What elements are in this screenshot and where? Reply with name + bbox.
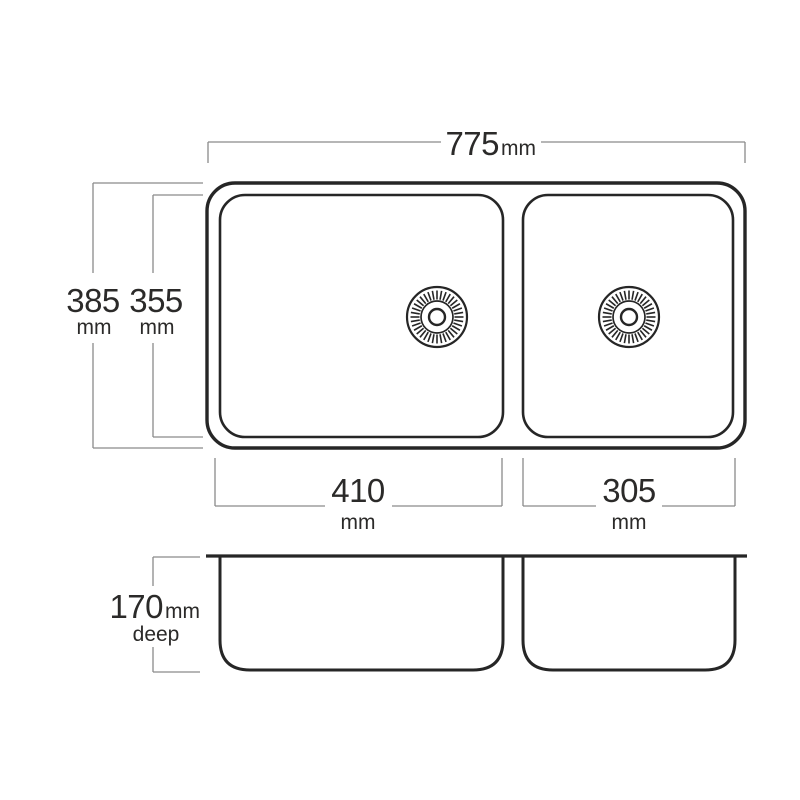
dim-overall-front-to-back-value: 385 bbox=[66, 282, 120, 319]
dim-bowl-depth: 170 mm deep bbox=[109, 557, 200, 672]
dim-overall-width-value: 775 bbox=[445, 125, 499, 162]
dim-right-bowl-width: 305 mm bbox=[523, 458, 735, 534]
left-bowl-outline bbox=[220, 195, 503, 437]
left-bowl-profile bbox=[220, 557, 503, 670]
side-view bbox=[206, 556, 747, 670]
top-view bbox=[207, 183, 745, 448]
right-drain-icon bbox=[599, 287, 659, 347]
dim-left-bowl-width-value: 410 bbox=[331, 472, 385, 509]
dim-right-bowl-width-unit: mm bbox=[612, 511, 647, 534]
dim-left-bowl-width: 410 mm bbox=[215, 458, 502, 534]
dim-right-bowl-width-value: 305 bbox=[602, 472, 656, 509]
dim-bowl-front-to-back-value: 355 bbox=[129, 282, 183, 319]
right-bowl-outline bbox=[523, 195, 733, 437]
dim-overall-front-to-back-unit: mm bbox=[77, 316, 112, 339]
dim-overall-width-unit: mm bbox=[501, 137, 536, 160]
left-drain-icon bbox=[407, 287, 467, 347]
dim-bowl-front-to-back: 355 mm bbox=[129, 195, 203, 437]
dim-left-bowl-width-unit: mm bbox=[341, 511, 376, 534]
dim-bowl-depth-label: deep bbox=[133, 623, 180, 646]
sink-technical-drawing: 775 mm 385 mm 355 mm 410 mm 305 mm bbox=[0, 0, 800, 800]
dim-bowl-front-to-back-unit: mm bbox=[140, 316, 175, 339]
sink-rim-outline bbox=[207, 183, 745, 448]
right-bowl-profile bbox=[523, 557, 735, 670]
dim-bowl-depth-unit: mm bbox=[165, 600, 200, 623]
dim-overall-width: 775 mm bbox=[208, 125, 745, 163]
dim-bowl-depth-value: 170 bbox=[109, 588, 163, 625]
drawing-svg: 775 mm 385 mm 355 mm 410 mm 305 mm bbox=[0, 0, 800, 800]
